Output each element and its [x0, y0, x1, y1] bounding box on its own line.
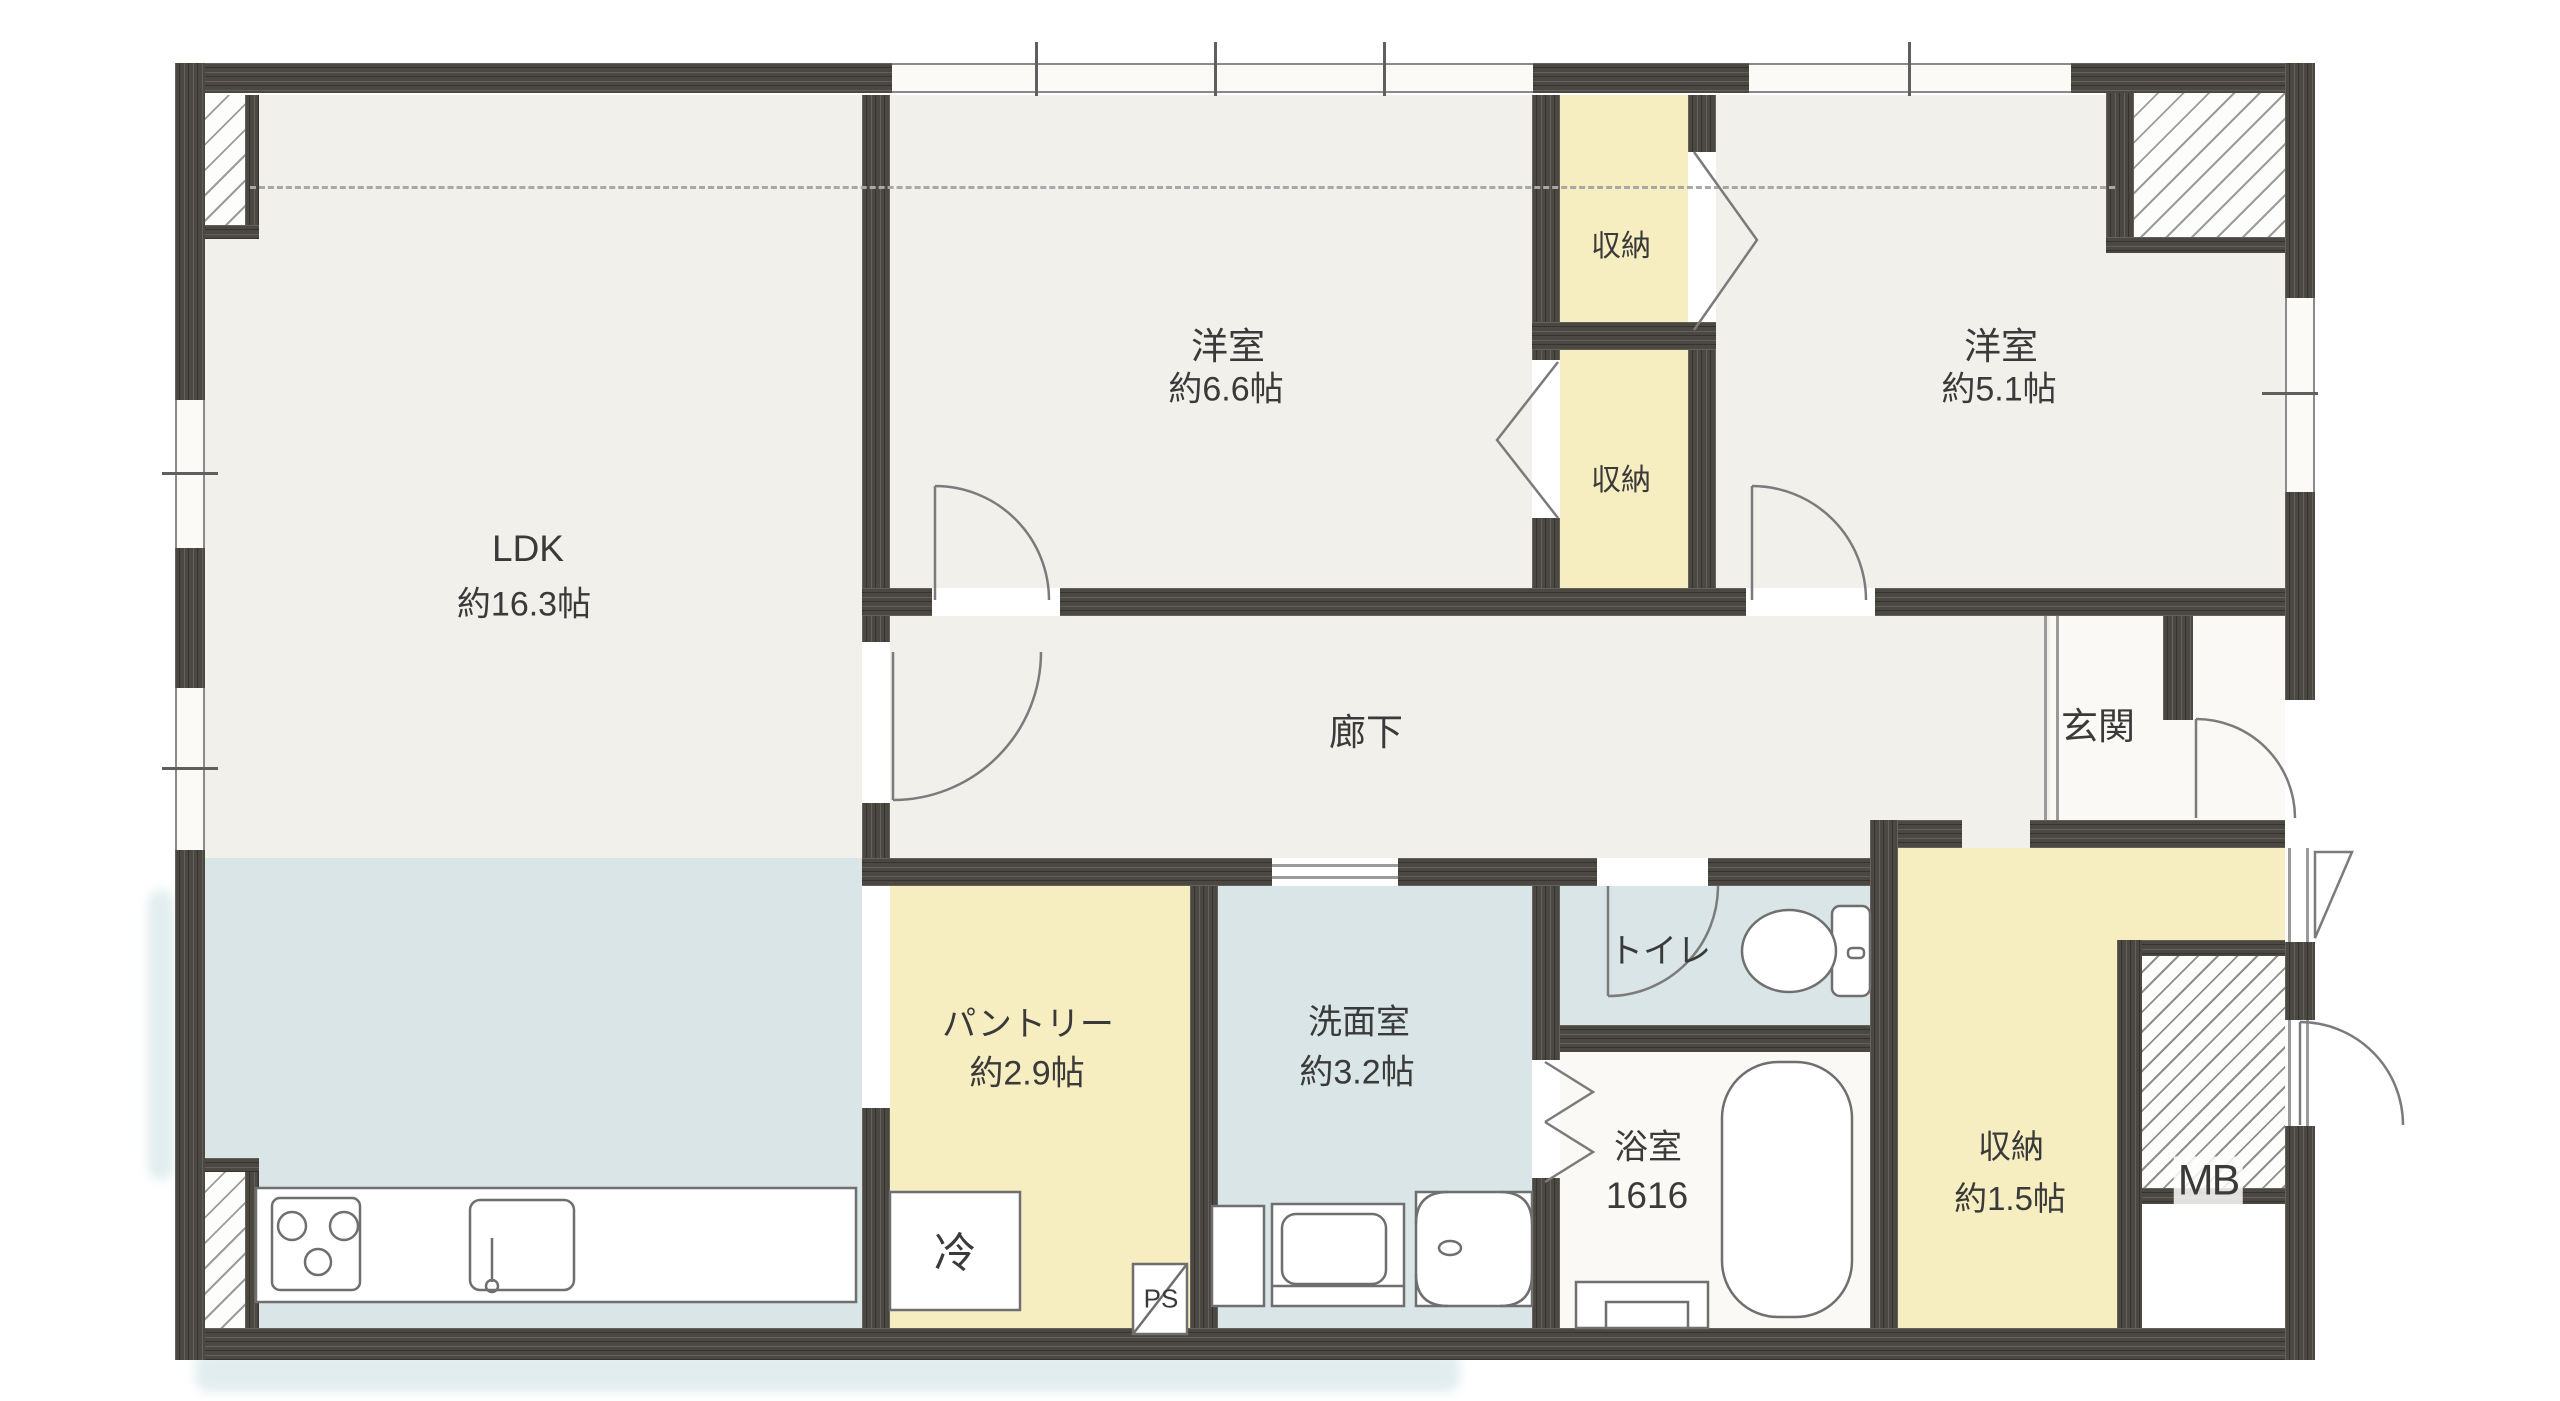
sink-icon — [470, 1200, 574, 1290]
bath-counter-icon — [1606, 1302, 1688, 1328]
bathtub-icon — [1722, 1062, 1852, 1317]
outswing-door-icon — [2315, 852, 2352, 938]
door-arc-icon — [2300, 1022, 2403, 1125]
room-label-ldk: LDK — [492, 528, 564, 570]
room-label-bathroom: 浴室 — [1614, 1120, 1682, 1169]
bath-folding-door-icon — [1545, 1062, 1593, 1182]
room-label-washroom: 洗面室 — [1308, 995, 1410, 1044]
floor-plan: LDK 約16.3帖 洋室 約6.6帖 収納 収納 洋室 約5.1帖 廊下 玄関… — [0, 0, 2560, 1401]
room-size-bathroom: 1616 — [1606, 1175, 1688, 1217]
room-size-bedroom-66: 約6.6帖 — [1168, 362, 1283, 411]
meter-box-label: MB — [2174, 1157, 2243, 1206]
room-label-storage: 収納 — [1978, 1120, 2044, 1168]
door-arc-icon — [1752, 486, 1866, 600]
room-size-washroom: 約3.2帖 — [1299, 1045, 1414, 1094]
cabinet-icon — [1212, 1206, 1264, 1306]
room-size-ldk: 約16.3帖 — [457, 577, 591, 626]
room-size-bedroom-51: 約5.1帖 — [1941, 362, 2056, 411]
door-arc-icon — [893, 652, 1041, 800]
sanitary-fixtures — [1133, 906, 1870, 1334]
room-label-closet-upper: 収納 — [1591, 221, 1651, 265]
room-label-entrance: 玄関 — [2061, 696, 2135, 750]
room-label-closet-lower: 収納 — [1591, 455, 1651, 499]
washing-machine-pan-icon — [1416, 1192, 1532, 1306]
room-size-pantry: 約2.9帖 — [969, 1046, 1084, 1095]
toilet-button-icon — [1848, 948, 1864, 958]
closet-door-icon — [1497, 362, 1558, 518]
refrigerator-label: 冷 — [934, 1220, 976, 1281]
toilet-icon — [1742, 910, 1836, 992]
closet-door-icon — [1694, 152, 1757, 330]
door-swing-icons — [893, 152, 2403, 1182]
kitchen-fixtures — [256, 1188, 1020, 1310]
door-arc-icon — [2196, 719, 2295, 818]
room-size-storage: 約1.5帖 — [1954, 1172, 2066, 1220]
door-arc-icon — [935, 486, 1049, 600]
room-label-toilet: トイレ — [1609, 924, 1711, 973]
room-label-pantry: パントリー — [942, 997, 1114, 1046]
pipe-space-label: PS — [1144, 1284, 1179, 1315]
room-label-hallway: 廊下 — [1329, 702, 1403, 756]
